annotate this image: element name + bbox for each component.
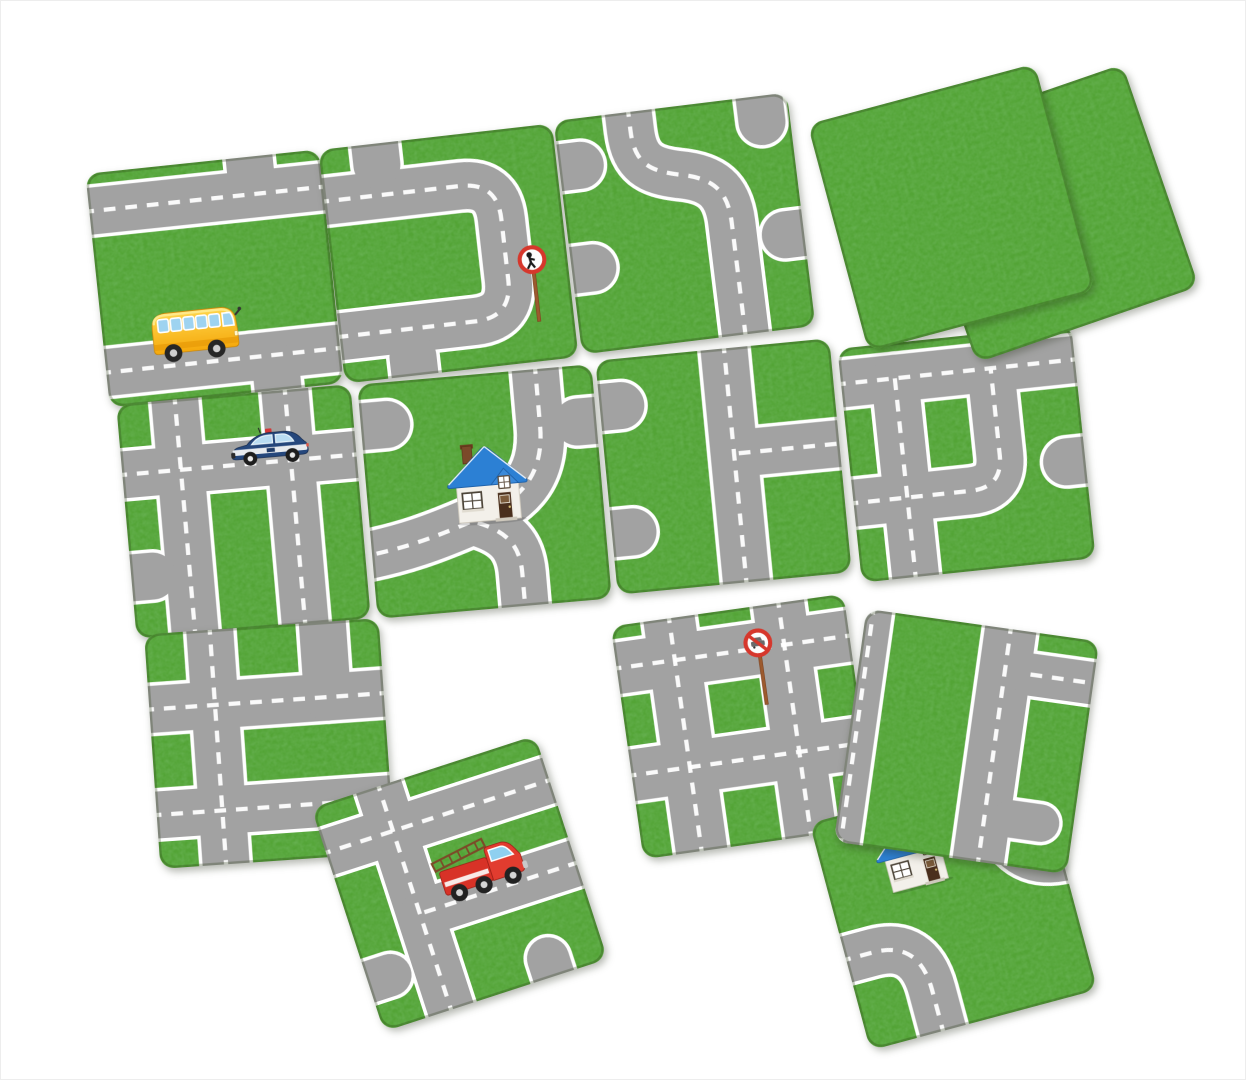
road-tile-t-junction-art — [595, 338, 851, 594]
road-tile-vertical-junction-art — [833, 608, 1098, 873]
road-tile-loop-sign-art — [318, 123, 578, 383]
road-tile-police-crossroads-art — [116, 384, 371, 639]
road-tile-police-crossroads[interactable] — [116, 384, 371, 639]
road-tile-curve-junction[interactable] — [837, 324, 1095, 582]
road-tile-s-curve-art — [553, 92, 815, 354]
road-tile-s-curve[interactable] — [553, 92, 815, 354]
play-area — [0, 0, 1246, 1080]
road-tile-house-art — [357, 364, 612, 619]
road-tile-t-junction[interactable] — [595, 338, 851, 594]
road-tile-vertical-junction[interactable] — [833, 608, 1098, 873]
road-tile-bus-art — [85, 149, 343, 407]
road-tile-loop-sign[interactable] — [318, 123, 578, 383]
road-tile-curve-junction-art — [837, 324, 1095, 582]
road-tile-house[interactable] — [357, 364, 612, 619]
road-tile-bus[interactable] — [85, 149, 343, 407]
